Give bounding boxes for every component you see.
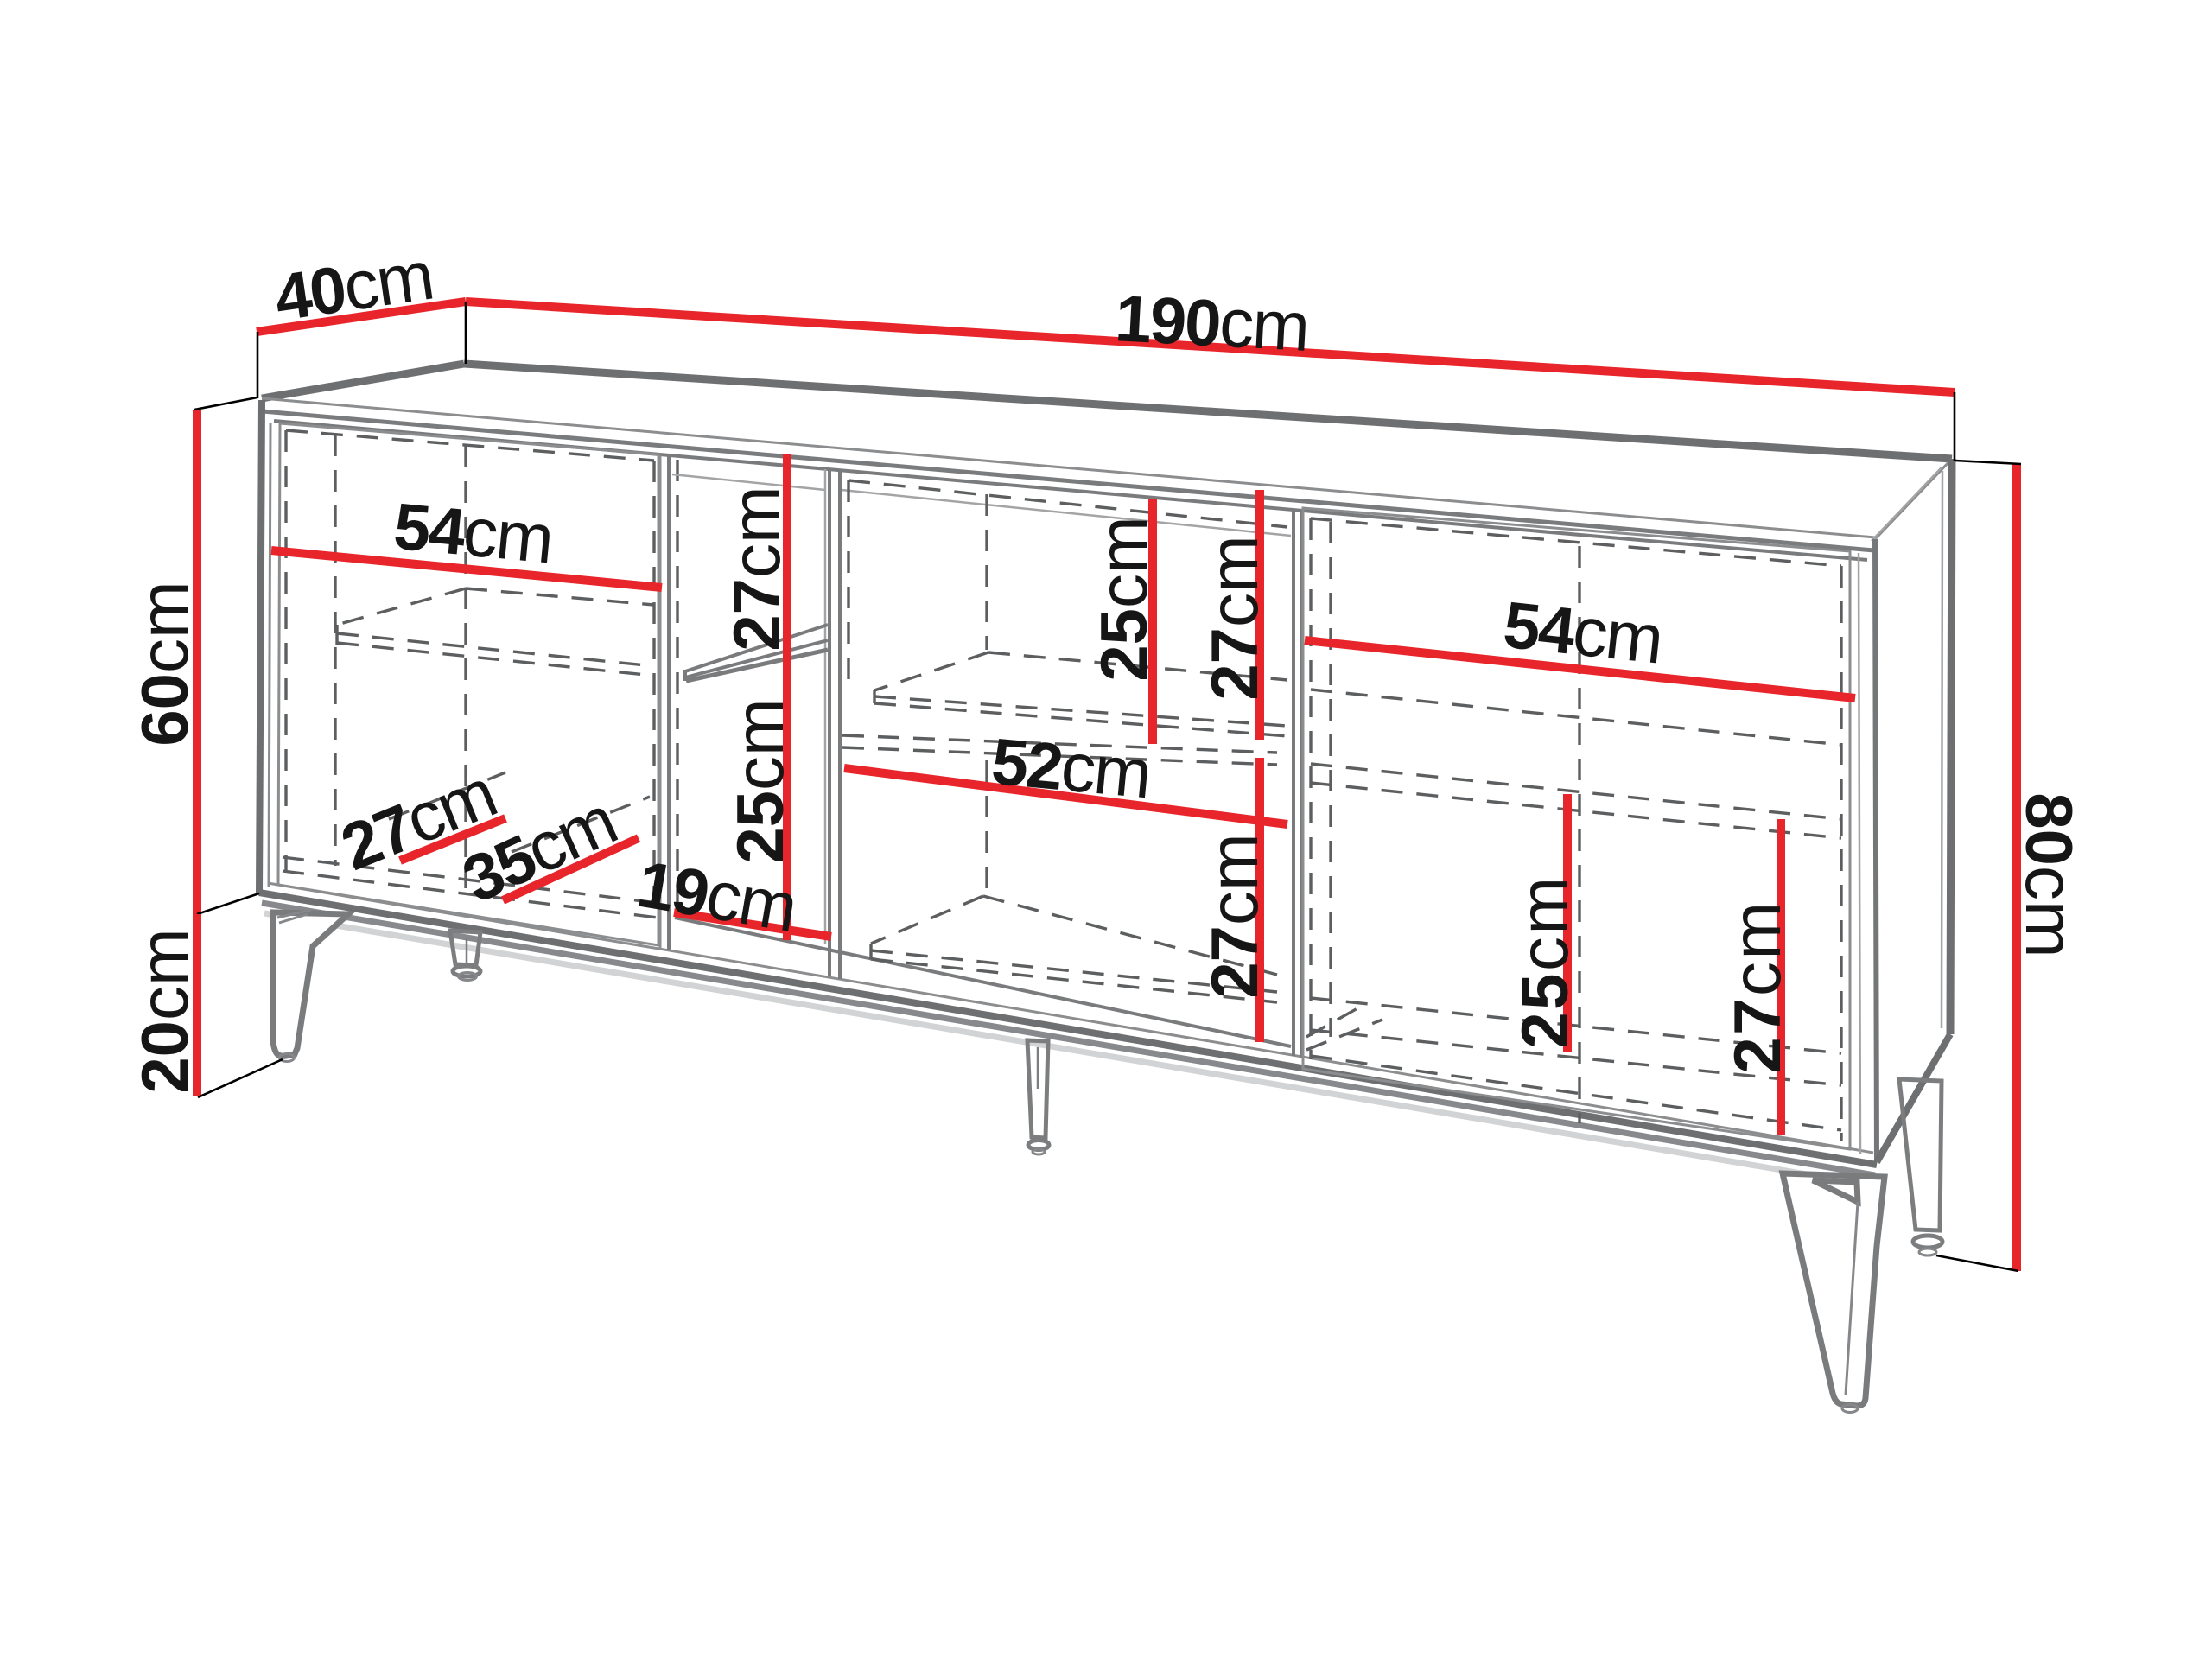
svg-text:27cm: 27cm — [1718, 899, 1795, 1073]
svg-text:25cm: 25cm — [1505, 874, 1582, 1048]
svg-text:60cm: 60cm — [125, 581, 202, 746]
svg-text:25cm: 25cm — [1084, 516, 1161, 681]
svg-text:190cm: 190cm — [1114, 278, 1311, 365]
svg-text:20cm: 20cm — [125, 928, 202, 1093]
svg-text:52cm: 52cm — [988, 721, 1154, 813]
svg-text:27cm: 27cm — [717, 486, 794, 651]
svg-text:27cm: 27cm — [1195, 535, 1272, 700]
svg-text:27cm: 27cm — [1195, 833, 1272, 998]
svg-text:25cm: 25cm — [721, 698, 798, 863]
svg-text:54cm: 54cm — [391, 486, 556, 578]
svg-text:80cm: 80cm — [2012, 792, 2088, 957]
